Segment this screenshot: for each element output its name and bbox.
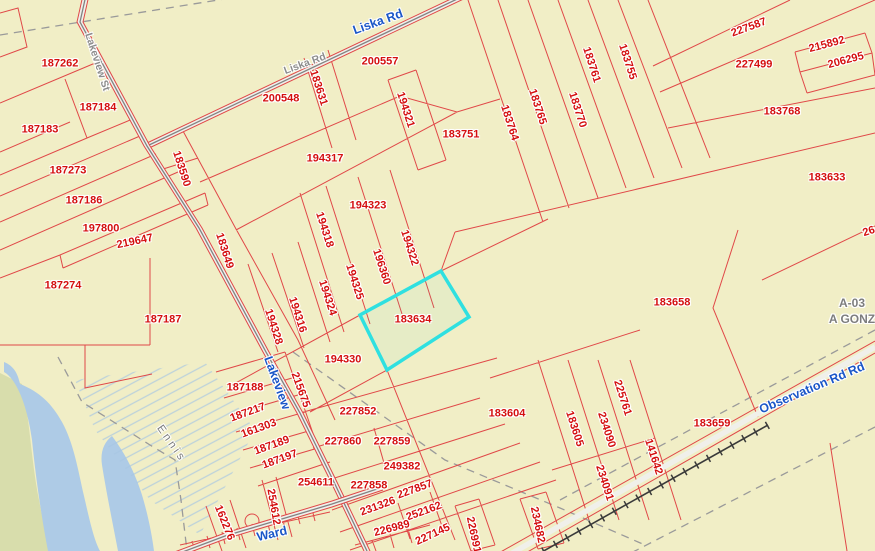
map-canvas[interactable]: 1872621871841871831872731871861978002196…	[0, 0, 875, 551]
map-graphics	[0, 0, 875, 551]
